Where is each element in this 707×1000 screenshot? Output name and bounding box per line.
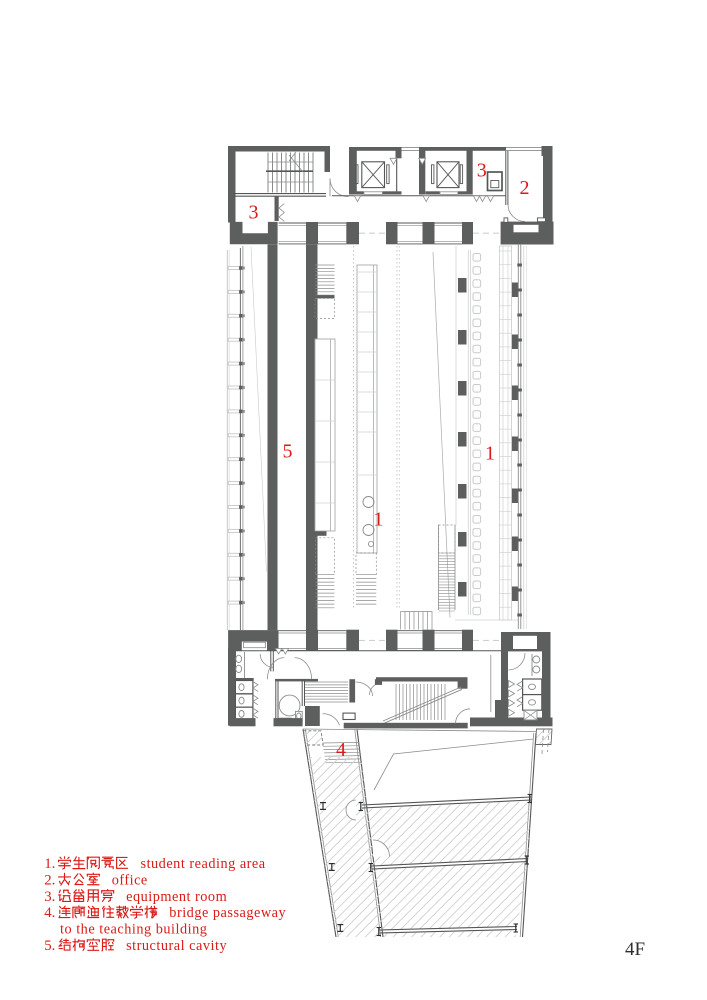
svg-text:4.: 4.	[44, 905, 55, 921]
svg-text:1.: 1.	[44, 856, 55, 872]
svg-text:bridge passageway: bridge passageway	[169, 905, 286, 921]
svg-text:2: 2	[520, 177, 530, 199]
svg-text:office: office	[112, 872, 148, 888]
svg-text:to the teaching building: to the teaching building	[60, 922, 207, 938]
svg-text:5.: 5.	[44, 938, 55, 954]
svg-text:1: 1	[485, 443, 495, 465]
svg-text:1: 1	[373, 509, 383, 531]
svg-text:3: 3	[477, 160, 487, 182]
svg-text:5: 5	[283, 441, 293, 463]
svg-text:2.: 2.	[44, 872, 55, 888]
svg-text:4: 4	[336, 739, 346, 761]
svg-text:3.: 3.	[44, 889, 55, 905]
svg-text:equipment room: equipment room	[126, 889, 227, 905]
svg-text:student reading area: student reading area	[141, 856, 266, 872]
svg-text:structural cavity: structural cavity	[126, 938, 227, 954]
svg-text:3: 3	[249, 202, 259, 224]
svg-text:4F: 4F	[625, 939, 645, 960]
